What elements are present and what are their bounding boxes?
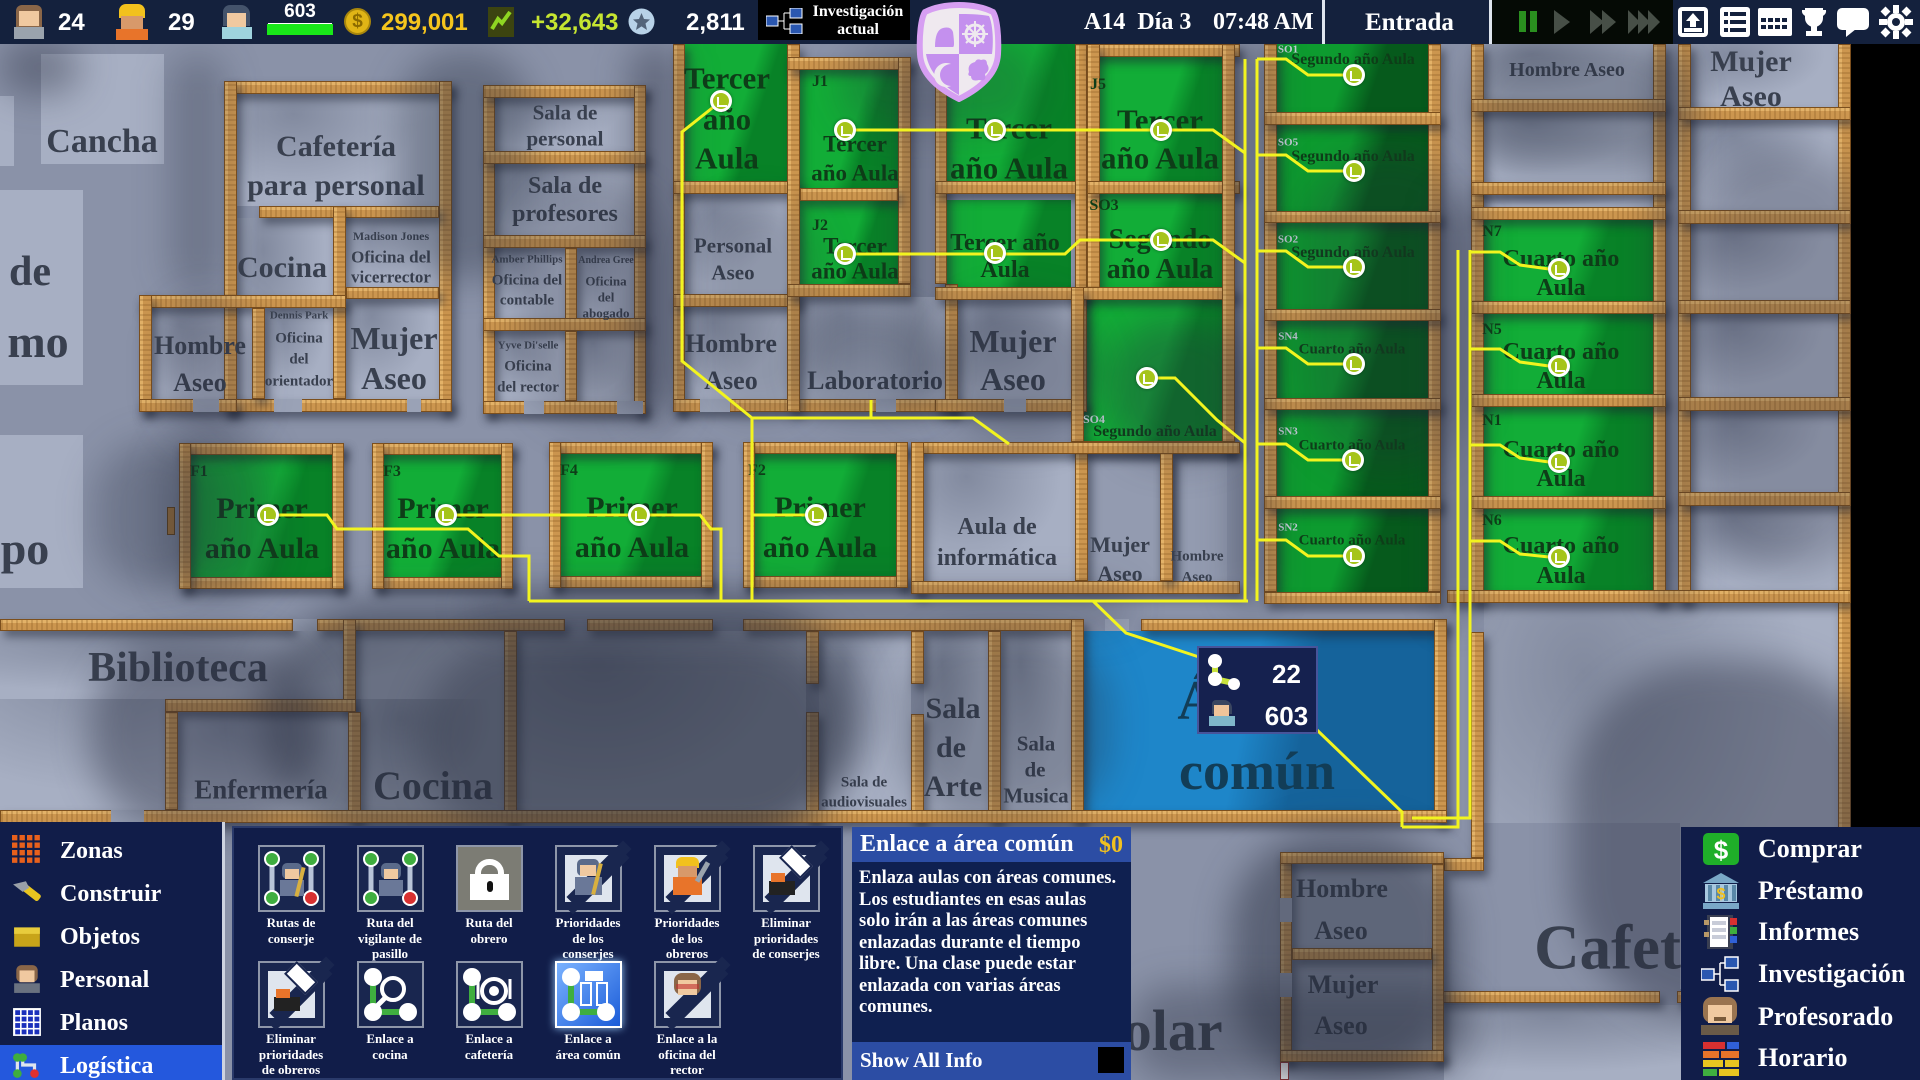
svg-text:$: $ (1714, 835, 1729, 865)
svg-text:$: $ (1717, 886, 1726, 903)
